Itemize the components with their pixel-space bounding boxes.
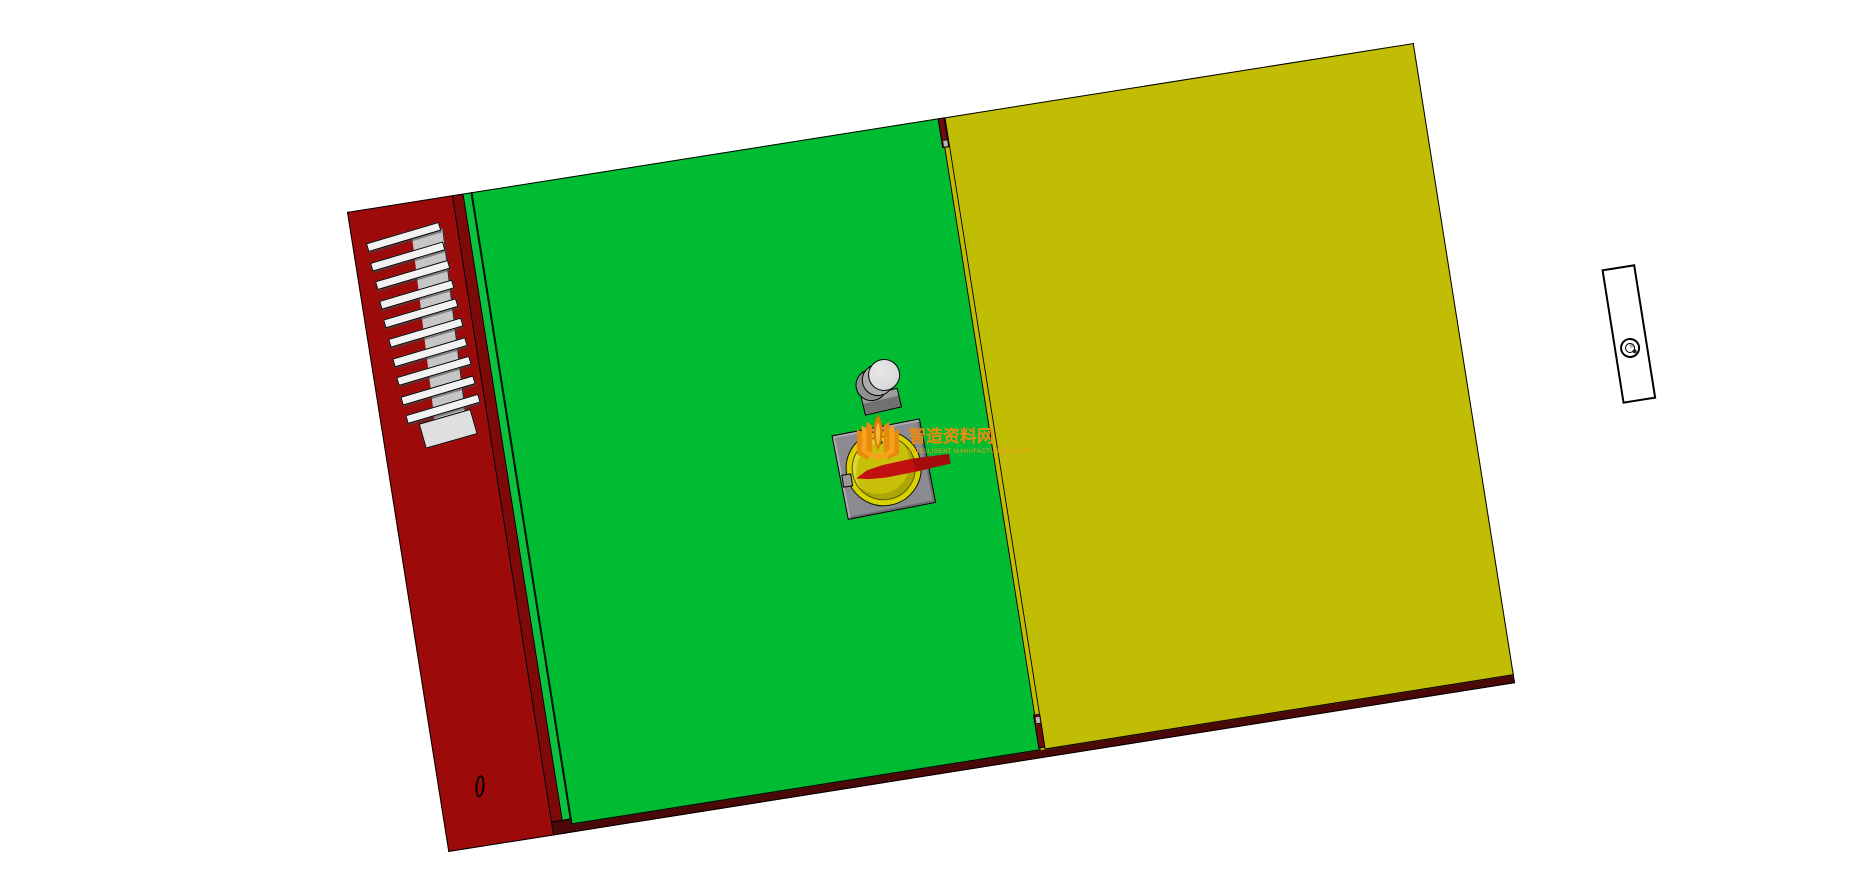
watermark-subtitle: INTELLIGENT MANUFACTURING DATA: [909, 449, 1030, 455]
cable-hole: [475, 775, 486, 798]
watermark-text: 智造资料网 INTELLIGENT MANUFACTURING DATA: [901, 412, 1030, 460]
lock-plate: [1601, 264, 1656, 404]
lock-cylinder-pin: [1632, 349, 1637, 354]
watermark: 智造资料网 INTELLIGENT MANUFACTURING DATA: [855, 412, 1030, 460]
lock-cylinder-core: [1624, 342, 1635, 353]
push-button: [850, 354, 912, 420]
cad-viewport: 智造资料网 INTELLIGENT MANUFACTURING DATA: [0, 0, 1860, 893]
right-door-yellow: [946, 43, 1514, 749]
watermark-title: 智造资料网: [909, 428, 1030, 447]
switch-latch-tab: [841, 473, 853, 487]
watermark-logo-book-flame-icon: [855, 412, 901, 460]
left-door-green: [471, 118, 1039, 824]
hinge-chip: [943, 139, 948, 147]
lock-cylinder: [1619, 337, 1642, 360]
hinge-chip: [1036, 717, 1041, 725]
